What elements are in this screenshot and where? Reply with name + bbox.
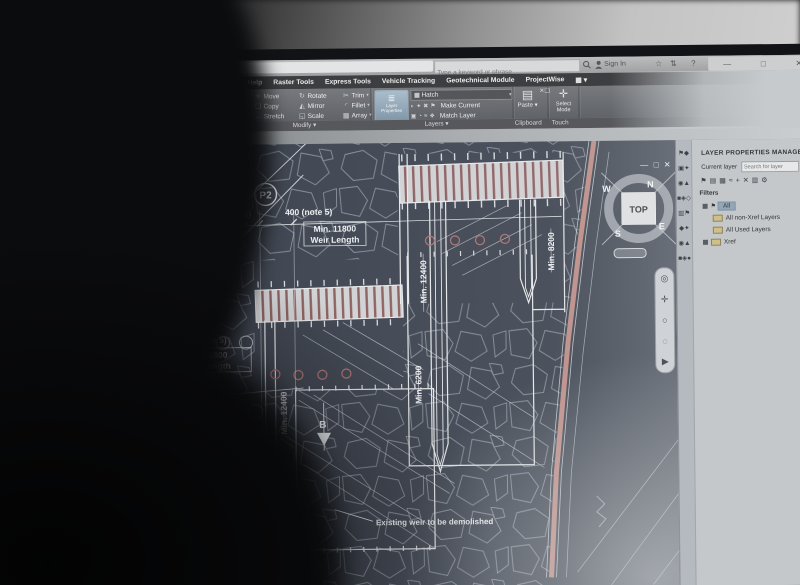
layer-search-input[interactable] (742, 162, 800, 172)
drawing-minimize-button[interactable]: — (640, 160, 648, 169)
folder-icon (713, 226, 723, 233)
checkbox-icon[interactable] (703, 239, 708, 244)
filters-label: Filters (699, 189, 800, 197)
drawing-window-controls: — □ ✕ (640, 160, 670, 169)
wcs-dropdown[interactable] (614, 248, 646, 257)
folder-icon (713, 214, 723, 221)
folder-icon (711, 238, 721, 245)
drawing-restore-button[interactable]: □ (654, 160, 659, 169)
filter-icon: ⚑ (711, 202, 716, 209)
viewcube-face-top: TOP (629, 204, 647, 214)
filter-item-all[interactable]: ⚑ All (703, 199, 800, 212)
photo-of-monitor: Autodesk AutoCAD Sign In ☆ ⇅ ? — □ ✕ Aut… (0, 0, 800, 585)
filter-item-used[interactable]: All Used Layers (713, 223, 800, 236)
drawing-close-button[interactable]: ✕ (664, 160, 671, 169)
viewcube-west[interactable]: W (602, 184, 611, 194)
filter-item-xref[interactable]: Xref (703, 235, 800, 248)
showmotion-icon[interactable]: ▶ (662, 356, 669, 367)
pan-icon[interactable]: ✛ (661, 294, 669, 305)
viewcube-east[interactable]: E (659, 221, 665, 231)
lpm-toolbar-icons[interactable]: ⚑▤▦≈+✕▥⚙ (700, 176, 800, 185)
viewcube-north[interactable]: N (647, 179, 654, 189)
filter-item-non-xref[interactable]: All non-Xref Layers (713, 211, 800, 224)
viewcube-south[interactable]: S (615, 229, 621, 239)
layer-search-box[interactable] (741, 161, 799, 173)
steering-wheel-icon[interactable]: ◎ (660, 273, 668, 284)
lpm-title: LAYER PROPERTIES MANAGER (701, 149, 800, 157)
layer-properties-manager: LAYER PROPERTIES MANAGER Current layer ○… (691, 139, 800, 585)
checkbox-icon[interactable] (703, 203, 708, 208)
zoom-icon[interactable]: ○ (662, 316, 668, 326)
navigation-bar: ◎ ✛ ○ ◌ ▶ (654, 267, 675, 373)
current-layer-label: Current layer (701, 163, 737, 170)
orbit-icon[interactable]: ◌ (662, 336, 667, 346)
